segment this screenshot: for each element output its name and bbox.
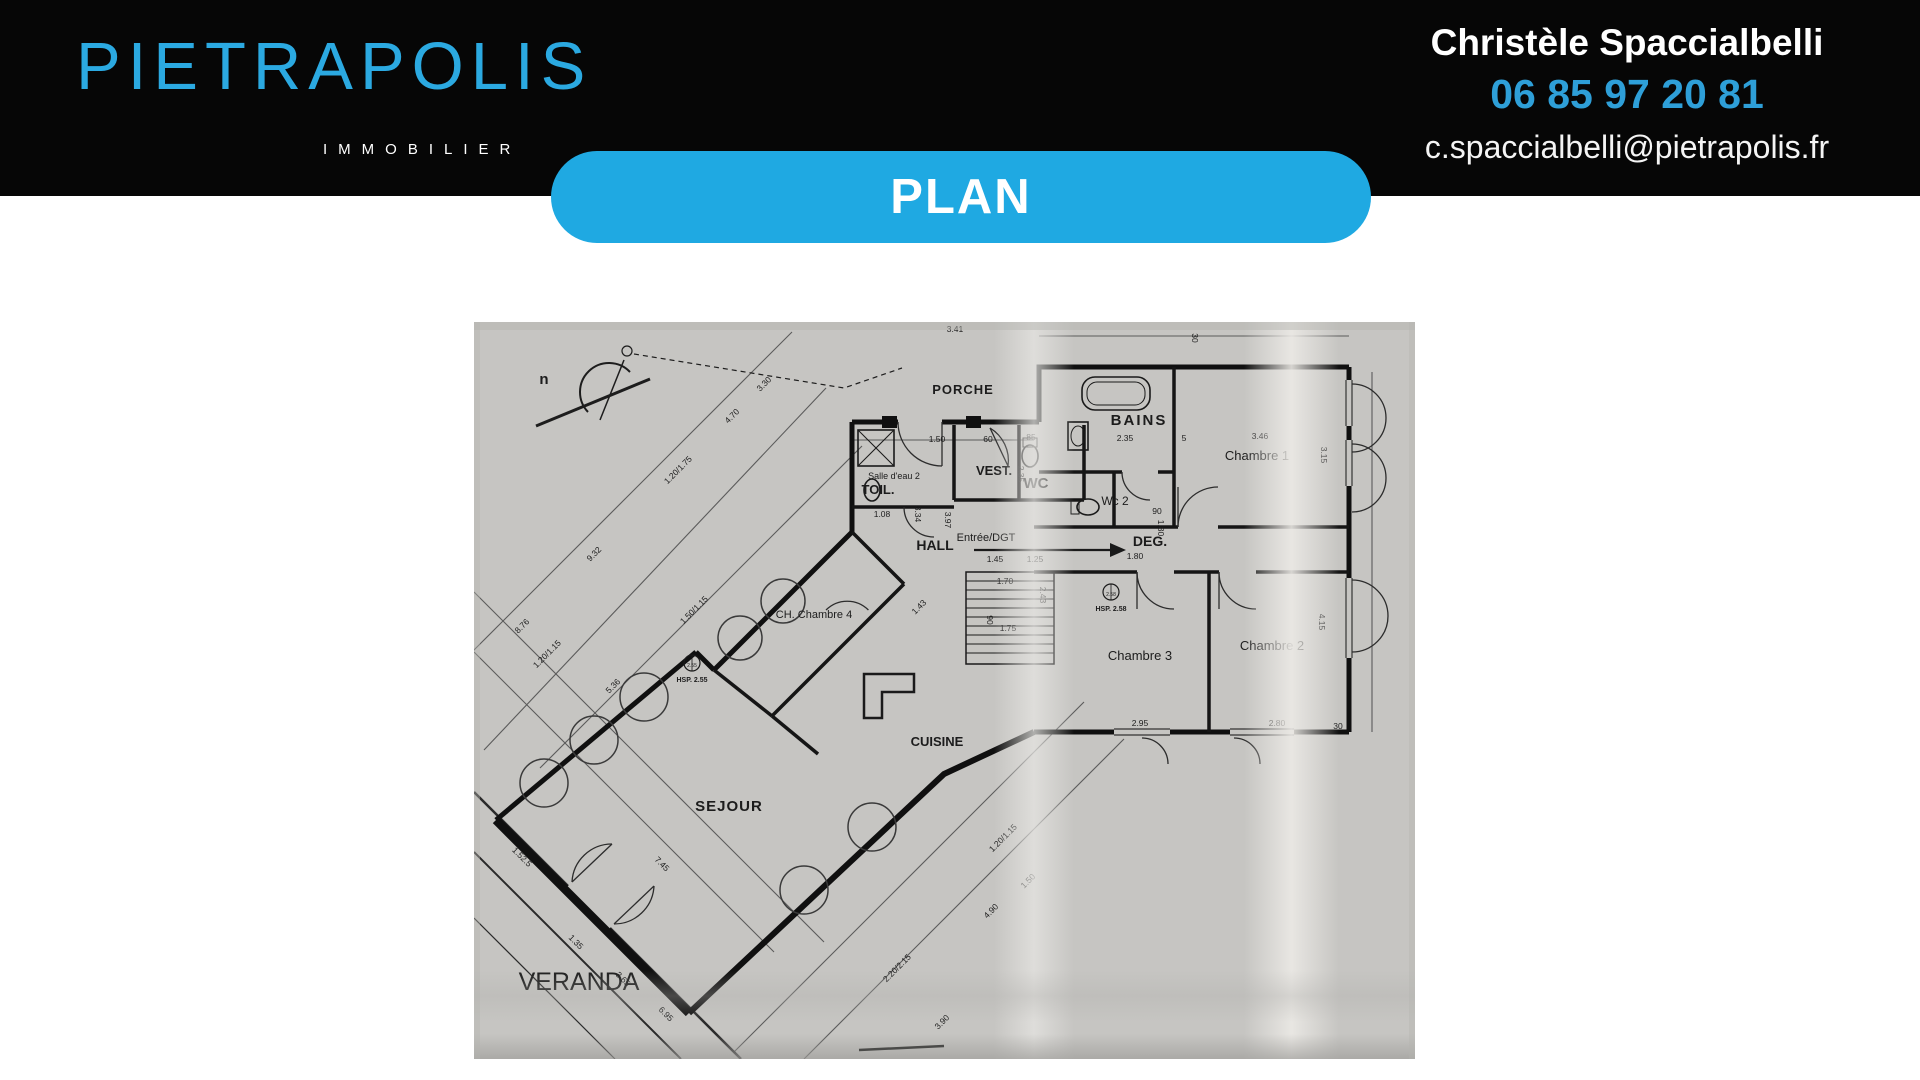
plan-label: Chambre 3	[1108, 648, 1172, 663]
plan-label: SEJOUR	[695, 798, 763, 815]
plan-label: CH. Chambre 4	[776, 609, 852, 621]
page: PIETRAPOLIS IMMOBILIER Christèle Spaccia…	[0, 0, 1920, 1080]
plan-label: PORCHE	[932, 382, 994, 397]
plan-banner-label: PLAN	[890, 169, 1031, 225]
plan-label: 90	[985, 615, 995, 625]
plan-label: 2.58	[1106, 592, 1116, 598]
plan-label: 1.80	[1156, 520, 1166, 537]
plan-label: 2.35	[1117, 433, 1134, 443]
floorplan-drawing: PORCHEBAINSChambre 1VEST.WCSalle d'eau 2…	[474, 322, 1415, 1059]
plan-label: n	[539, 371, 548, 388]
plan-label: 2.95	[1132, 718, 1149, 728]
plan-label: TOIL.	[862, 482, 895, 497]
plan-label: 30	[1190, 333, 1200, 343]
plan-label: HSP. 2.55	[676, 677, 707, 684]
agent-email[interactable]: c.spaccialbelli@pietrapolis.fr	[1392, 127, 1862, 167]
plan-label: 1.80	[1127, 551, 1144, 561]
plan-label: Wc 2	[1101, 494, 1129, 508]
plan-label: 3.97	[943, 512, 953, 529]
agent-name: Christèle Spaccialbelli	[1392, 20, 1862, 66]
plan-label: BAINS	[1111, 412, 1168, 429]
floorplan-photo: PORCHEBAINSChambre 1VEST.WCSalle d'eau 2…	[474, 322, 1415, 1059]
plan-label: HALL	[916, 537, 954, 553]
brand-logo: PIETRAPOLIS	[76, 28, 592, 105]
plan-label: HSP. 2.58	[1095, 606, 1126, 613]
plan-label: 90	[1152, 506, 1162, 516]
plan-label: CUISINE	[911, 734, 964, 749]
plan-label: 5	[1182, 433, 1187, 443]
agent-contact-block: Christèle Spaccialbelli 06 85 97 20 81 c…	[1392, 20, 1862, 167]
plan-banner: PLAN	[551, 151, 1371, 243]
plan-label: 60	[983, 434, 993, 444]
brand-tagline: IMMOBILIER	[323, 141, 521, 158]
plan-label: Salle d'eau 2	[868, 471, 920, 481]
plan-label: 3.34	[913, 506, 923, 523]
plan-label: 2.55	[687, 663, 697, 669]
plan-label: 1.08	[874, 509, 891, 519]
agent-phone[interactable]: 06 85 97 20 81	[1392, 68, 1862, 121]
plan-label: 1.50	[929, 434, 946, 444]
